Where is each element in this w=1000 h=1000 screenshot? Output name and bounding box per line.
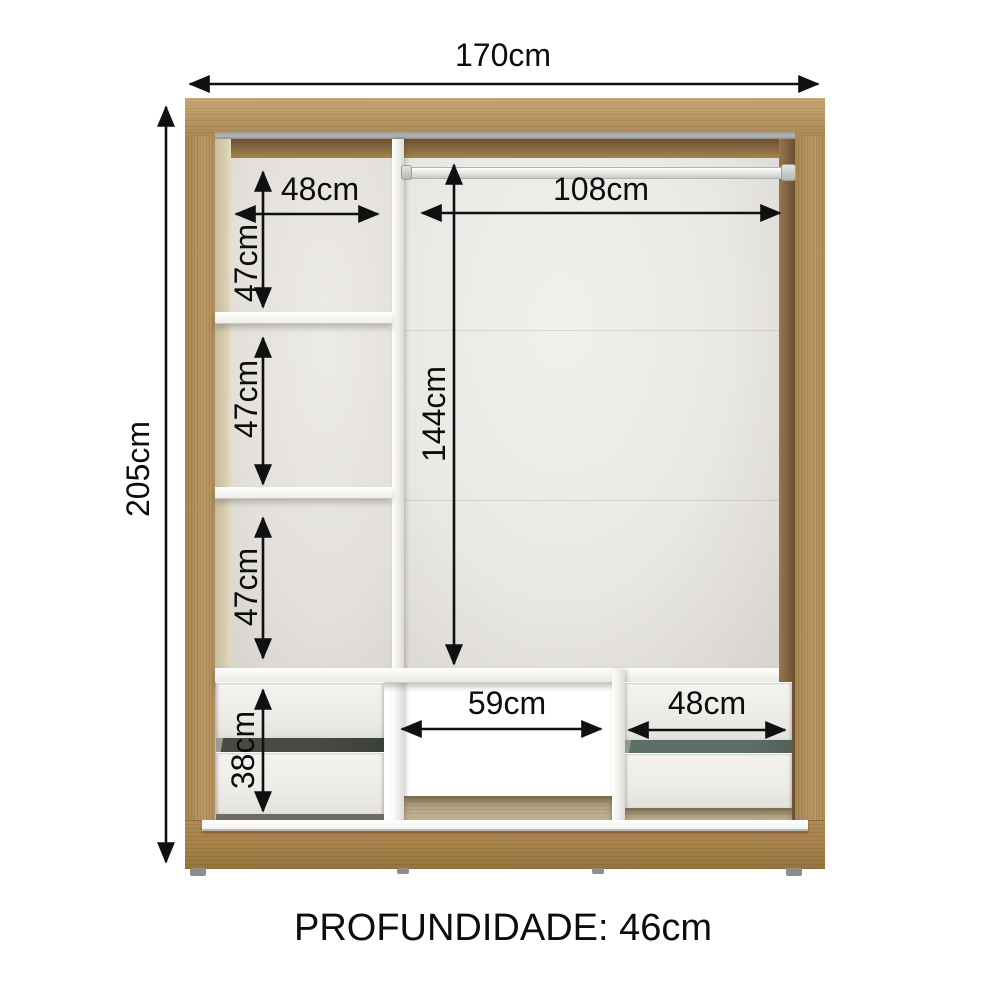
wardrobe-dimension-diagram: 170cm 205cm 48cm 108cm 47cm 47cm 47cm 14… <box>0 0 1000 1000</box>
dim-label-left-section-1-height: 47cm <box>230 224 262 302</box>
dim-label-overall-height: 205cm <box>122 421 154 517</box>
dim-label-right-drawer-width: 48cm <box>668 687 746 719</box>
dim-label-main-compartment-height: 144cm <box>418 366 450 462</box>
dim-label-hanging-rod-width: 108cm <box>553 173 649 205</box>
dim-label-drawer-unit-height: 38cm <box>227 711 259 789</box>
dim-label-center-opening-width: 59cm <box>468 687 546 719</box>
dim-label-left-section-2-height: 47cm <box>230 360 262 438</box>
dim-label-left-section-3-height: 47cm <box>230 548 262 626</box>
dim-label-left-compartment-width: 48cm <box>281 173 359 205</box>
depth-note: PROFUNDIDADE: 46cm <box>294 909 712 947</box>
dim-label-overall-width: 170cm <box>455 39 551 71</box>
